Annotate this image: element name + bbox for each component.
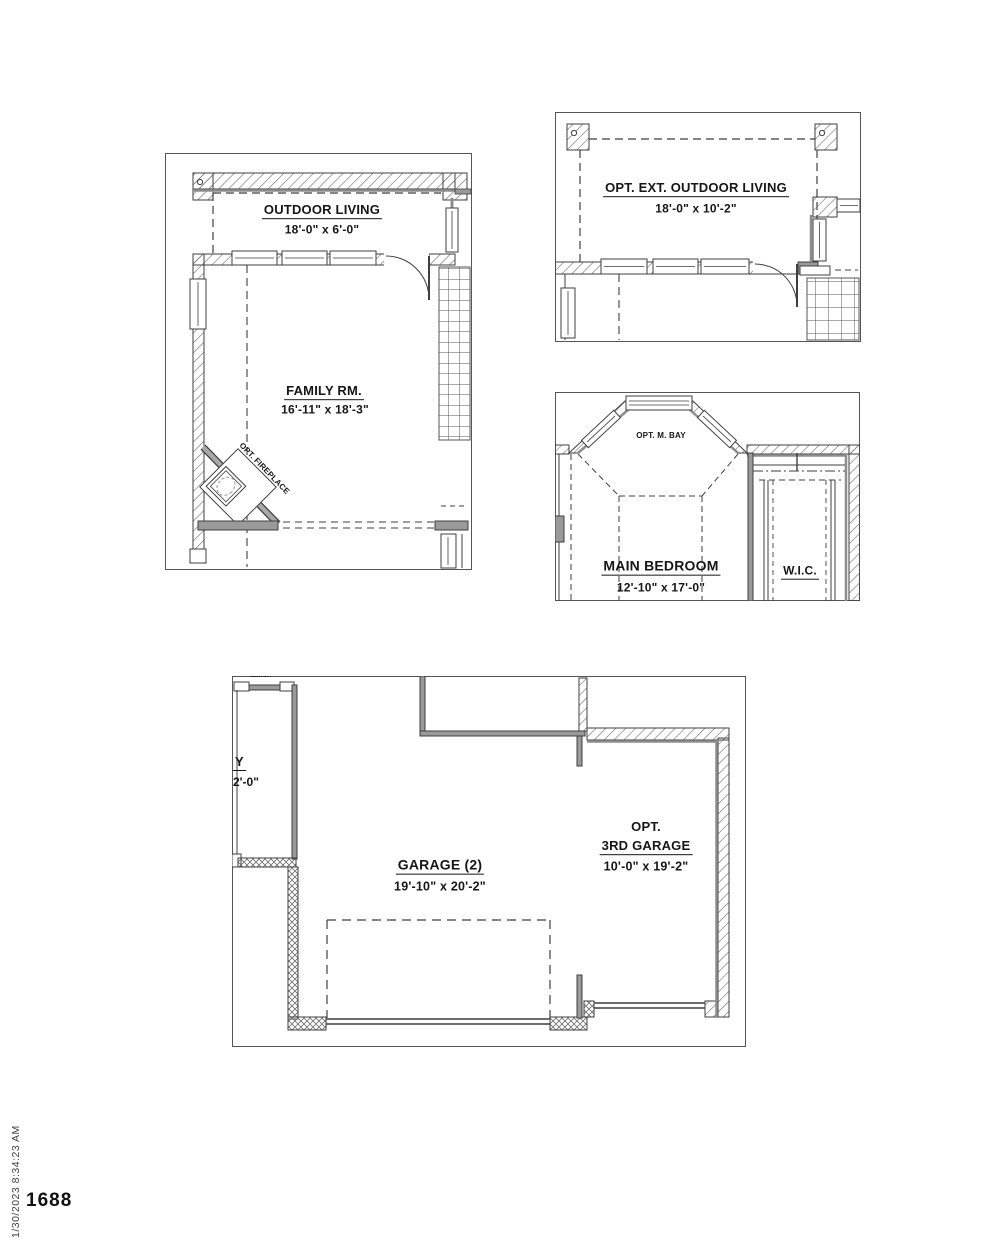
entry-dims-clipped: 2'-0" xyxy=(233,775,259,789)
column-marker-icon xyxy=(819,130,824,135)
window xyxy=(190,279,206,329)
window xyxy=(601,259,647,274)
column-marker-icon xyxy=(197,179,202,184)
opt-3rd-garage-line2: 3RD GARAGE xyxy=(600,839,693,855)
window xyxy=(701,259,749,274)
floor-plan-sheet: OUTDOOR LIVING 18'-0" x 6'-0" FAMILY RM.… xyxy=(0,0,1000,1250)
window xyxy=(446,208,458,252)
window xyxy=(441,534,456,568)
outdoor-living-dims: 18'-0" x 6'-0" xyxy=(285,224,360,237)
opt-3rd-garage-dims: 10'-0" x 19'-2" xyxy=(604,860,689,873)
column-marker-icon xyxy=(571,130,576,135)
garage-plan: BENCH Y 2'-0" GARAGE (2) 19'-10" x 20'-2… xyxy=(232,676,746,1047)
window xyxy=(330,251,376,265)
opt-3rd-garage-line1: OPT. xyxy=(631,820,661,834)
opt-m-bay-label: OPT. M. BAY xyxy=(636,432,685,440)
family-rm-label: FAMILY RM. xyxy=(284,384,364,400)
main-bedroom-plan: OPT. M. BAY MAIN BEDROOM 12'-10" x 17'-0… xyxy=(555,392,860,601)
entry-label-clipped: Y xyxy=(233,754,246,771)
opt-ext-outdoor-living-dims: 18'-0" x 10'-2" xyxy=(655,203,736,216)
family-room-plan: OUTDOOR LIVING 18'-0" x 6'-0" FAMILY RM.… xyxy=(165,153,472,570)
opt-ext-outdoor-living-linework xyxy=(555,112,862,343)
outdoor-living-label: OUTDOOR LIVING xyxy=(262,203,382,219)
window xyxy=(561,288,575,338)
plot-timestamp: 1/30/2023 8:34:23 AM xyxy=(10,1125,22,1238)
tile-grid xyxy=(807,278,859,340)
window xyxy=(837,199,860,212)
opt-ext-outdoor-living-plan: OPT. EXT. OUTDOOR LIVING 18'-0" x 10'-2" xyxy=(555,112,862,343)
main-bedroom-dims: 12'-10" x 17'-0" xyxy=(617,582,705,595)
stairs-grid xyxy=(439,267,470,440)
bench-label-clipped: BENCH xyxy=(250,676,271,679)
window xyxy=(813,219,826,261)
bay-window xyxy=(569,396,747,453)
garage-2-label: GARAGE (2) xyxy=(396,858,484,875)
window xyxy=(234,682,249,691)
window xyxy=(653,259,698,274)
main-bedroom-label: MAIN BEDROOM xyxy=(601,559,720,576)
window xyxy=(232,251,277,265)
wic-label: W.I.C. xyxy=(781,565,819,580)
sheet-number: 1688 xyxy=(26,1190,72,1212)
fireplace xyxy=(200,447,278,525)
opt-ext-outdoor-living-label: OPT. EXT. OUTDOOR LIVING xyxy=(603,181,789,197)
door xyxy=(384,252,429,300)
garage-2-dims: 19'-10" x 20'-2" xyxy=(394,880,486,893)
window xyxy=(282,251,327,265)
family-rm-dims: 16'-11" x 18'-3" xyxy=(281,404,369,417)
door xyxy=(753,260,798,307)
